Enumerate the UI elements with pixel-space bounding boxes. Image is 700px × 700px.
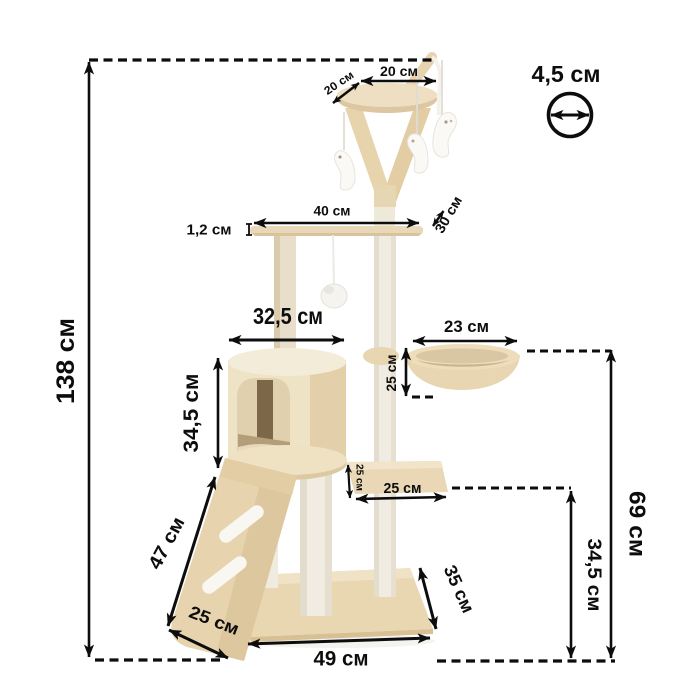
svg-text:25 см: 25 см [354, 464, 366, 491]
svg-text:49 см: 49 см [314, 648, 369, 671]
svg-text:34,5 см: 34,5 см [583, 539, 605, 612]
svg-text:32,5 см: 32,5 см [253, 303, 323, 329]
svg-text:25 см: 25 см [383, 355, 399, 392]
svg-text:4,5 см: 4,5 см [532, 61, 601, 87]
svg-text:1,2 см: 1,2 см [187, 223, 232, 239]
svg-text:25 см: 25 см [384, 481, 422, 497]
svg-text:20 см: 20 см [380, 64, 418, 79]
svg-text:23 см: 23 см [444, 318, 489, 336]
svg-text:40 см: 40 см [314, 204, 351, 219]
svg-text:69 см: 69 см [625, 491, 651, 557]
svg-text:34,5 см: 34,5 см [180, 374, 203, 453]
svg-text:138 см: 138 см [52, 318, 80, 404]
